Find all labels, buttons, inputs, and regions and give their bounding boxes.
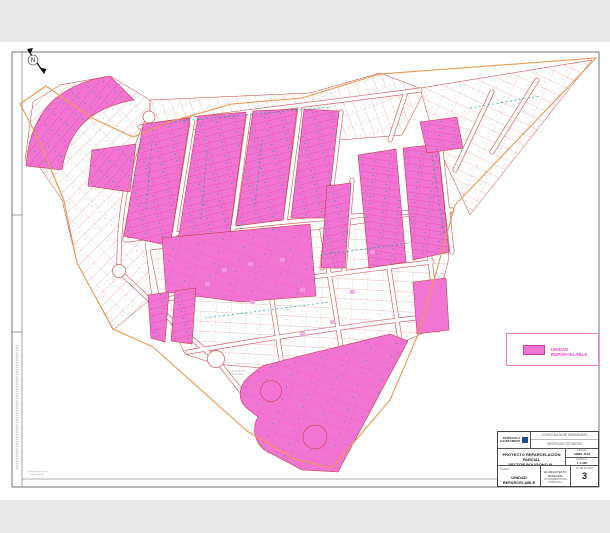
pink-roundabout-1 [261, 381, 282, 402]
department-cell: CONCEJALÍA DE URBANISMO SERVICIOS TÉCNIC… [531, 432, 598, 449]
dept-line1: CONCEJALÍA DE URBANISMO [531, 432, 598, 440]
fecha-cell: FECHA ABRIL 2013 [566, 449, 598, 458]
project-title-cell: PROYECTO REPARCELACIÓN PARCIAL SECTOR PO… [498, 449, 566, 466]
escala-cell: ESCALA 1:1.000 [566, 458, 598, 466]
signer-cell: EL ARQUITECTO MUNICIPAL AYUNTAMIENTO DE … [541, 466, 571, 486]
legend-swatch [523, 345, 545, 355]
signer-sub: AYUNTAMIENTO DE PEÑÍSCOLA [541, 478, 570, 484]
dept-line2: SERVICIOS TÉCNICOS [531, 440, 598, 448]
drawing-viewport: N UNIDAD REPARCELABLE PEÑÍSCOLA AJUNTAME… [0, 0, 610, 533]
legend-label: UNIDAD REPARCELABLE [551, 347, 598, 357]
signer-title: EL ARQUITECTO MUNICIPAL [541, 471, 570, 478]
plano-name: UNIDAD REPARCELABLE [498, 475, 540, 485]
sheet-number-cell: Nº DE PLANO 3 [571, 466, 598, 486]
plano-label: PLANO: [500, 467, 540, 471]
pink-square [413, 278, 449, 334]
pink-wedge-a [148, 292, 169, 342]
park-label-microtext [230, 371, 246, 374]
escala-value: 1:1.000 [566, 461, 598, 465]
pink-wedge-b [171, 288, 196, 344]
legend-box: UNIDAD REPARCELABLE [506, 333, 599, 366]
pink-block-ne [420, 117, 463, 153]
municipal-logo: PEÑÍSCOLA AJUNTAMENT [498, 432, 531, 449]
fecha-value: ABRIL 2013 [566, 452, 598, 456]
pink-roundabout-2 [303, 425, 327, 449]
margin-microtext [17, 345, 48, 475]
plano-cell: PLANO: UNIDAD REPARCELABLE [498, 466, 541, 486]
title-block: PEÑÍSCOLA AJUNTAMENT CONCEJALÍA DE URBAN… [497, 431, 599, 487]
sheet-number: 3 [571, 470, 598, 482]
logo-sub: AJUNTAMENT [500, 440, 520, 443]
municipal-shield-icon [522, 437, 528, 443]
project-line1: PROYECTO REPARCELACIÓN PARCIAL [498, 452, 565, 462]
north-letter: N [31, 58, 35, 64]
pink-chunk [88, 144, 136, 192]
